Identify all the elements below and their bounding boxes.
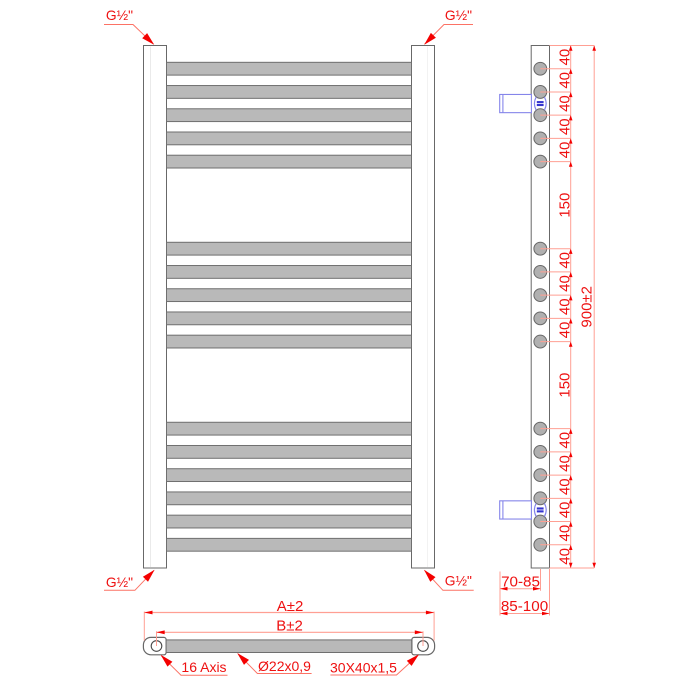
svg-text:G½": G½" — [106, 575, 133, 590]
svg-text:G½": G½" — [445, 574, 472, 589]
svg-text:40: 40 — [556, 525, 573, 542]
svg-text:40: 40 — [556, 72, 573, 89]
svg-text:40: 40 — [556, 548, 573, 565]
svg-text:A±2: A±2 — [277, 598, 304, 615]
svg-text:16 Axis: 16 Axis — [181, 659, 226, 675]
svg-text:40: 40 — [556, 432, 573, 449]
svg-text:B±2: B±2 — [276, 617, 303, 634]
svg-text:40: 40 — [556, 252, 573, 269]
svg-text:40: 40 — [556, 322, 573, 339]
svg-text:40: 40 — [556, 478, 573, 495]
svg-text:150: 150 — [556, 373, 573, 398]
svg-text:85-100: 85-100 — [501, 598, 548, 615]
svg-text:40: 40 — [556, 118, 573, 135]
svg-text:40: 40 — [556, 142, 573, 159]
svg-text:40: 40 — [556, 298, 573, 315]
svg-text:70-85: 70-85 — [501, 573, 540, 590]
svg-text:40: 40 — [556, 502, 573, 519]
svg-text:40: 40 — [556, 95, 573, 112]
svg-text:40: 40 — [556, 455, 573, 472]
svg-text:Ø22x0,9: Ø22x0,9 — [258, 658, 311, 674]
svg-text:30X40x1,5: 30X40x1,5 — [330, 660, 397, 676]
svg-text:G½": G½" — [445, 8, 472, 23]
svg-text:40: 40 — [556, 275, 573, 292]
svg-text:40: 40 — [556, 49, 573, 66]
svg-text:G½": G½" — [106, 8, 133, 23]
svg-text:900±2: 900±2 — [579, 286, 596, 328]
svg-text:150: 150 — [556, 193, 573, 218]
